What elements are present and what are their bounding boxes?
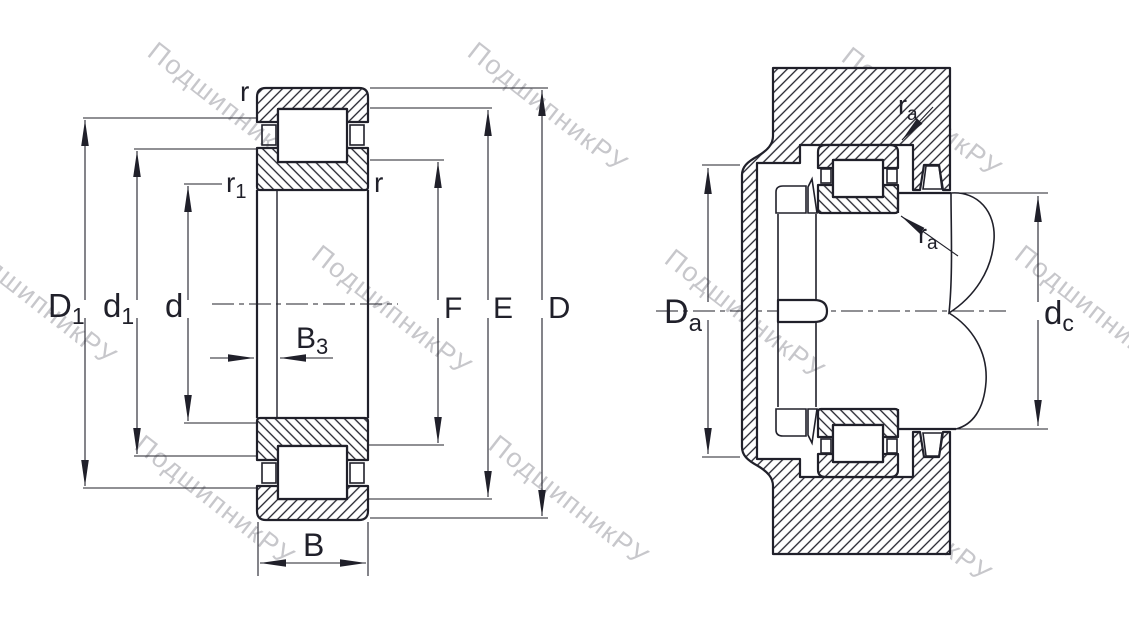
- cage-bottom-right: [350, 463, 364, 483]
- dim-label-D: D: [548, 290, 570, 325]
- technical-drawing-page: ПодшипникРУ ПодшипникРУ ПодшипникРУ Подш…: [0, 0, 1129, 632]
- abutment-wedge-bottom: [808, 409, 817, 443]
- seal-ring-top: [923, 166, 942, 189]
- technical-drawing-canvas: ПодшипникРУ ПодшипникРУ ПодшипникРУ Подш…: [0, 0, 1129, 632]
- roller-bottom: [833, 425, 883, 462]
- cage-top-right: [350, 125, 364, 145]
- roller-top: [833, 160, 883, 197]
- left-view-bearing-cross-section: D1 d1 d F: [48, 76, 570, 576]
- shaft-break-teardrop: [949, 193, 994, 313]
- dim-label-B3: B3: [296, 322, 328, 359]
- roller-bottom: [278, 446, 347, 499]
- cage-bottom-left: [821, 439, 831, 453]
- dim-label-Da: Da: [664, 293, 703, 337]
- dim-label-d: d: [165, 287, 183, 324]
- dim-label-F: F: [444, 292, 462, 325]
- dimension-B3: B3: [210, 322, 333, 359]
- seal-ring-bottom: [923, 433, 942, 456]
- radius-label-r-inner: r: [374, 167, 383, 198]
- cage-top-left: [821, 169, 831, 183]
- dim-label-B: B: [303, 527, 324, 563]
- dim-label-D1: D1: [48, 287, 85, 329]
- watermark-text: ПодшипникРУ: [483, 429, 654, 572]
- dim-label-E: E: [493, 292, 513, 325]
- cage-bottom-right: [887, 439, 897, 453]
- shaft-center-pin: [778, 300, 827, 322]
- cage-top-right: [887, 169, 897, 183]
- abutment-wedge-top: [808, 179, 817, 213]
- radius-label-ra-bottom: ra: [918, 219, 938, 254]
- cage-bottom-left: [262, 463, 276, 483]
- roller-top: [278, 109, 347, 162]
- dim-label-d1: d1: [103, 287, 134, 329]
- radius-label-r-top: r: [240, 76, 249, 107]
- abutment-ring-bottom: [776, 409, 806, 436]
- shaft-break-curve: [949, 313, 986, 429]
- abutment-ring-top: [776, 186, 806, 213]
- radius-label-r1: r1: [226, 167, 246, 203]
- leader-ra-bottom: ra: [901, 216, 958, 256]
